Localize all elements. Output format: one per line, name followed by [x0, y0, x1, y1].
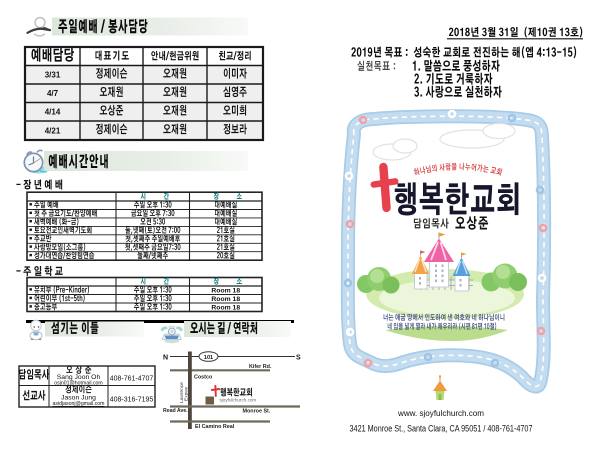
svg-text:N: N: [163, 355, 168, 362]
svg-text:408-761-4707: 408-761-4707: [110, 376, 154, 383]
svg-text:Read Ave.: Read Ave.: [163, 408, 188, 414]
svg-text:S: S: [296, 355, 301, 362]
svg-text:3421 Monroe St., Santa Clara,: 3421 Monroe St., Santa Clara, CA 95051 /…: [350, 424, 533, 434]
svg-text:sjoyfulchurch.com: sjoyfulchurch.com: [220, 397, 257, 402]
svg-text:Room 18: Room 18: [211, 305, 240, 312]
svg-text:Costco: Costco: [194, 375, 213, 381]
svg-text:4/7: 4/7: [47, 89, 59, 98]
svg-text:101: 101: [204, 355, 213, 361]
svg-text:El Camino Real: El Camino Real: [195, 424, 235, 430]
svg-text:3/31: 3/31: [45, 71, 61, 80]
svg-text:Room 18: Room 18: [211, 288, 240, 295]
svg-text:Room 18: Room 18: [211, 296, 240, 303]
svg-text:4/21: 4/21: [45, 126, 61, 135]
svg-text:Kifer Rd.: Kifer Rd.: [249, 364, 272, 370]
svg-text:Monroe St.: Monroe St.: [243, 409, 271, 415]
svg-text:asidjasonj@gmail.com: asidjasonj@gmail.com: [53, 401, 105, 407]
svg-text:osjn01@hotmail.com: osjn01@hotmail.com: [54, 380, 103, 386]
svg-text:408-316-7195: 408-316-7195: [110, 397, 154, 404]
svg-text:www. sjoyfulchurch.com: www. sjoyfulchurch.com: [397, 408, 484, 418]
svg-text:Expwy: Expwy: [184, 386, 190, 401]
svg-text:4/14: 4/14: [45, 108, 61, 117]
